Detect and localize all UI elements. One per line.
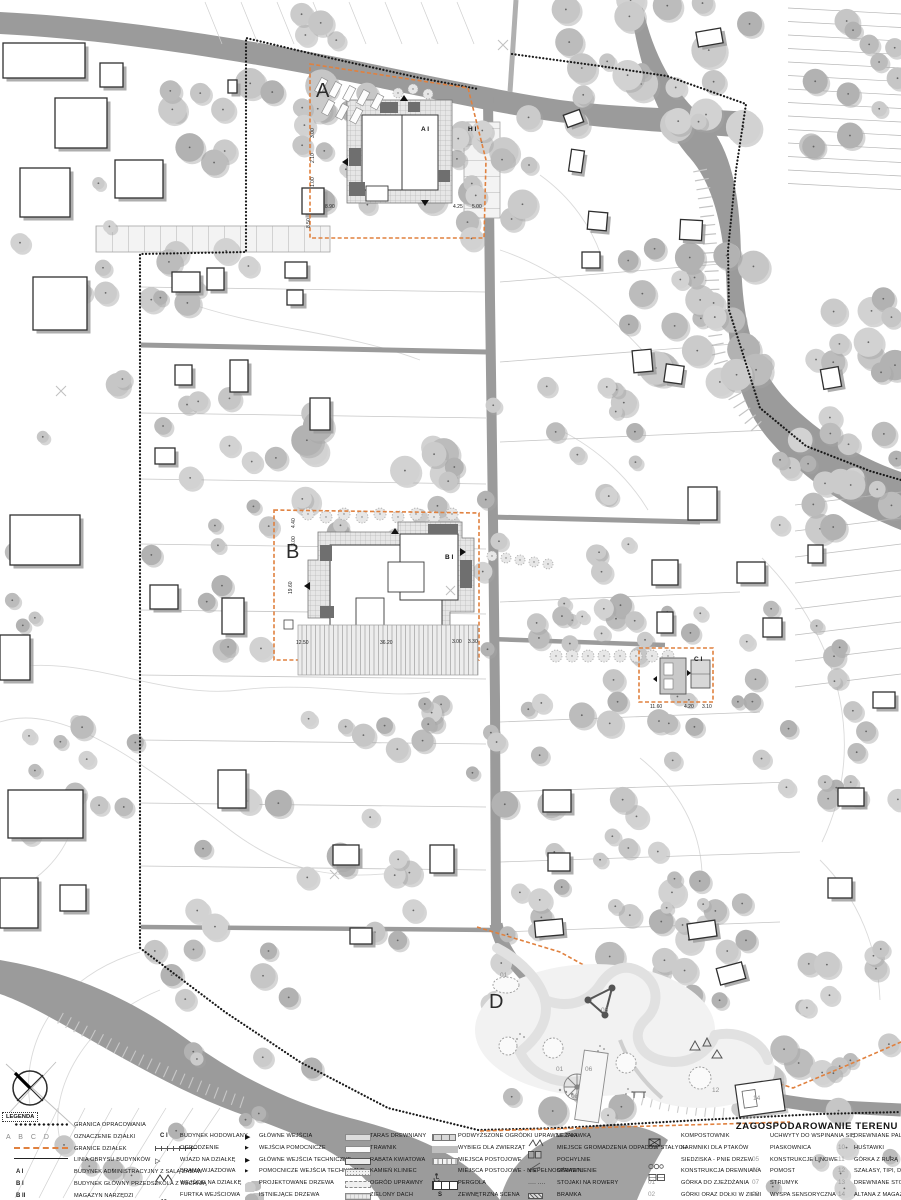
tree (211, 98, 237, 124)
legend-code: B I (16, 1181, 24, 1187)
legend-label: OZNACZENIE DZIAŁKI (74, 1135, 135, 1141)
tree (114, 798, 135, 819)
playground-number: 12 (712, 1087, 720, 1094)
tree (692, 0, 716, 16)
swing-icon (632, 1092, 646, 1098)
tree (567, 53, 599, 85)
building-label: B I (445, 554, 454, 561)
legend-label: RABATA KWIATOWA (370, 1158, 425, 1164)
tree (803, 69, 831, 97)
legend-label: POCHYLNIE (557, 1158, 591, 1164)
tree (79, 751, 98, 770)
tree (538, 1096, 570, 1128)
tree (887, 67, 901, 91)
tree (610, 787, 638, 815)
tree (179, 466, 204, 491)
existing-house (820, 366, 845, 393)
tree (621, 537, 638, 554)
dimension-label: 3.10 (702, 704, 712, 710)
tree (94, 282, 119, 307)
sw-postoj-symbol (432, 1158, 458, 1165)
tree (697, 898, 712, 913)
tree (712, 992, 731, 1011)
legend-code: 13 (838, 1180, 845, 1186)
tree (190, 83, 213, 106)
tree (521, 157, 540, 176)
existing-house (663, 364, 687, 388)
tree (242, 452, 265, 475)
projected-tree (392, 511, 404, 523)
existing-house (155, 448, 179, 468)
existing-house (302, 188, 328, 218)
tree (878, 1033, 901, 1057)
tree (388, 931, 410, 953)
tree (872, 422, 899, 449)
dimension-label: 3.30 (468, 639, 478, 645)
tree (260, 942, 280, 962)
tree (818, 775, 835, 792)
tree (154, 417, 174, 437)
road-top-branch (510, 0, 516, 92)
oswietlenie-symbol: × × (528, 1169, 537, 1175)
tree (618, 838, 640, 860)
tree (265, 790, 294, 819)
legend-label: MIEJSCE GROMADZENIA ODPADÓW STAŁYCH (557, 1146, 687, 1152)
legend-label: BRAMA WJAZDOWA (180, 1169, 236, 1175)
dimension-label: 8.90 (325, 204, 335, 210)
tree (390, 456, 422, 488)
existing-house (0, 635, 34, 684)
legend-label: GŁÓWNE WEJŚCIA (259, 1134, 312, 1140)
tree (28, 764, 44, 780)
legend-label: ZEWNĘTRZNA SCENA (458, 1193, 520, 1199)
existing-house (688, 487, 721, 524)
parcel-line (140, 803, 486, 807)
legend-code: 10 (838, 1145, 845, 1151)
tree (887, 789, 901, 813)
parcel-line (500, 342, 760, 362)
legend-label: OŚWIETLENIE (557, 1169, 597, 1175)
legend-code: S (438, 1192, 442, 1198)
legend-code: 11 (838, 1157, 845, 1163)
projected-tree (356, 511, 368, 523)
legend-label: BRAMKA (557, 1193, 582, 1199)
legend-code: 14 (838, 1192, 845, 1198)
projected-tree (566, 650, 578, 662)
tree (847, 743, 868, 764)
tree (648, 842, 670, 864)
legend-label: KARMNIKI DLA PTAKÓW (681, 1146, 748, 1152)
legend-label: LINIA OBRYSU BUDYNKÓW (74, 1158, 150, 1164)
legend-label: WEJŚCIA POMOCNICZE (259, 1146, 326, 1152)
dimension-label: 19.60 (288, 581, 294, 594)
projected-tree (515, 555, 525, 565)
tree (603, 669, 627, 693)
tree (402, 899, 427, 924)
existing-house (20, 168, 74, 221)
tree (681, 623, 702, 644)
tree (537, 377, 559, 399)
legend-label: MIEJSCA POSTOJOWE (458, 1158, 522, 1164)
legend-label: KONSTRUKCJE LINOWE (770, 1158, 838, 1164)
tri-small-symbol: ▷ (155, 1181, 159, 1186)
tree (569, 447, 587, 465)
tree (503, 1088, 523, 1108)
projected-tree (374, 508, 386, 520)
legend-label: TRAWNIK (370, 1146, 397, 1152)
tree (780, 720, 800, 740)
dash-orange-symbol (14, 1147, 68, 1149)
tree (837, 123, 866, 152)
tree (771, 516, 792, 537)
existing-house (534, 919, 567, 941)
tree (194, 840, 214, 860)
sw-trawnik-symbol (345, 1146, 371, 1153)
tree (265, 447, 290, 472)
tree (644, 238, 668, 262)
tree (198, 593, 218, 613)
parcel-line (500, 712, 760, 722)
sw-rabata-symbol (345, 1158, 371, 1165)
site-plan-drawing: ABDA IH IB IC I8.503.002.101.008.904.255… (0, 0, 901, 1200)
legend-code: A I (16, 1169, 23, 1175)
tree (597, 378, 618, 399)
existing-house (8, 790, 87, 842)
tree (618, 250, 641, 273)
tree (175, 133, 206, 164)
projected-tree (582, 650, 594, 662)
existing-house (828, 878, 856, 902)
tree (837, 82, 863, 108)
tree (22, 729, 39, 746)
tree (843, 701, 865, 723)
legend-code: A B C D (6, 1134, 52, 1141)
legend-label: SIEDZISKA - PNIE DRZEW (681, 1158, 753, 1164)
tree (546, 422, 568, 444)
tree (653, 0, 685, 23)
tree (211, 575, 235, 599)
legend-label: POMOST (770, 1169, 795, 1175)
tree (531, 746, 551, 766)
legend-label: GÓRKA DO ZJEŻDŻANIA (681, 1181, 749, 1187)
arrow-xs-symbol: ▶ (245, 1169, 248, 1174)
river-bottom (0, 960, 500, 1200)
legend-label: WYBIEG DLA ZWIERZĄT (458, 1146, 526, 1152)
tree (316, 142, 336, 162)
legend-label: ISTNIEJĄCE DRZEWA (259, 1193, 319, 1199)
projected-tree (320, 511, 332, 523)
tree (127, 734, 147, 754)
existing-house (3, 43, 89, 82)
legend-code: 07 (752, 1180, 759, 1186)
tree (386, 738, 411, 763)
drawing-title: ZAGOSPODAROWANIE TERENU (736, 1121, 898, 1132)
tree (664, 752, 684, 772)
existing-house (55, 98, 111, 152)
tree (70, 715, 96, 741)
legend-label: TARAS DREWNIANY (370, 1134, 426, 1140)
tree (689, 870, 713, 894)
playground-number: 06 (585, 1066, 593, 1073)
parcel-line (140, 675, 486, 679)
projected-tree (501, 553, 511, 563)
existing-house (632, 349, 657, 376)
legend-label: KOMPOSTOWNIK (681, 1134, 730, 1140)
legend-label: WJAZD NA DZIAŁKĘ (180, 1158, 236, 1164)
legend-label: LEŻAKI (557, 1134, 577, 1140)
tree (753, 750, 773, 770)
tree (608, 899, 625, 916)
projected-tree (529, 557, 539, 567)
tree (778, 779, 798, 799)
existing-house (808, 545, 827, 567)
tree (253, 1048, 275, 1070)
tree (260, 80, 286, 106)
legend-label: FURTKA WEJŚCIOWA (180, 1193, 240, 1199)
dimension-label: 8.50 (306, 218, 312, 228)
tree (619, 315, 641, 337)
existing-house (350, 928, 376, 948)
legend-code: 12 (838, 1168, 845, 1174)
tree (629, 280, 658, 309)
road-cross-right-1 (490, 517, 700, 522)
legend-label: WYSPA SENSORYCZNA (770, 1193, 836, 1199)
existing-house (230, 360, 252, 396)
legend-label: ALTANA Z MAGAZYNEM (854, 1193, 901, 1199)
dimension-label: 4.40 (291, 518, 297, 528)
tree (593, 853, 610, 870)
projected-tree (646, 650, 658, 662)
existing-house (10, 515, 84, 569)
legend-label: WEJŚCIE NA DZIAŁKĘ (180, 1181, 241, 1187)
tree (821, 298, 850, 327)
tree (54, 735, 70, 751)
legend-code: B II (16, 1193, 25, 1199)
legend-label: DREWNIANE PALE (854, 1134, 901, 1140)
dimension-label: 5.00 (472, 204, 482, 210)
dimension-label: 11.60 (650, 704, 662, 710)
area-label: A (316, 80, 330, 102)
dimension-label: 3.00 (291, 536, 297, 546)
tree (466, 766, 481, 781)
tree (629, 455, 645, 471)
existing-house (548, 853, 574, 875)
sw-taras-symbol (345, 1134, 371, 1141)
legend-label: PROJEKTOWANE DRZEWA (259, 1181, 334, 1187)
tree (37, 431, 52, 446)
arrow-tech-symbol: ▶ (245, 1158, 250, 1165)
legend-label: KONSTRUKCJA DREWNIANA (681, 1169, 761, 1175)
projected-tree (630, 650, 642, 662)
tree (141, 545, 164, 568)
projected-tree (487, 551, 497, 561)
tree (352, 724, 378, 750)
legend-code: 05 (752, 1157, 759, 1163)
existing-house (218, 770, 250, 812)
tree (737, 11, 765, 39)
existing-house (172, 272, 204, 296)
legend-label: HUŚTAWKI (854, 1146, 884, 1152)
dimension-label: 36.20 (380, 640, 393, 646)
tree (625, 611, 647, 633)
playground-number: 08 (571, 1093, 579, 1100)
tree (888, 451, 901, 470)
dimension-label: 4.20 (684, 704, 694, 710)
existing-house (430, 845, 458, 877)
bramka-symbol (528, 1193, 543, 1199)
tree (597, 710, 625, 738)
tree (90, 796, 111, 817)
existing-house (838, 788, 868, 810)
existing-house (115, 160, 167, 202)
tree (738, 251, 772, 285)
arrow-lg-symbol: ▶ (245, 1134, 250, 1141)
legend-label: DREWNIANE STOŁECZKI (854, 1181, 901, 1187)
road-cross-left-1 (141, 345, 487, 352)
area-label: D (489, 991, 503, 1013)
tree (856, 721, 879, 744)
tree (202, 914, 231, 943)
existing-house (763, 618, 786, 641)
legend-code: 06 (752, 1168, 759, 1174)
existing-house (287, 290, 307, 309)
projected-tree (543, 559, 553, 569)
tree (820, 986, 841, 1007)
tree (208, 519, 224, 535)
tree (675, 243, 707, 275)
dimension-label: 2.10 (310, 153, 316, 163)
tree (5, 593, 22, 610)
tree (301, 1057, 325, 1081)
sw-dach-symbol (345, 1193, 371, 1200)
tree (297, 867, 321, 891)
building-b-group (284, 522, 478, 675)
projected-tree (614, 650, 626, 662)
legend-code: 02 (648, 1192, 655, 1198)
legend-label: GRANICA OPRACOWANIA (74, 1123, 146, 1129)
legend-label: STRUMYK (770, 1181, 798, 1187)
tree (528, 888, 554, 914)
dimension-label: 3.00 (452, 639, 462, 645)
existing-house (285, 262, 311, 282)
tri-open-symbol: ▷ (155, 1158, 160, 1165)
existing-house (657, 612, 677, 637)
legend-code: 08 (752, 1192, 759, 1198)
tree (745, 669, 769, 693)
projected-tree (408, 84, 418, 94)
legend-label: MAGAZYN NARZĘDZI (74, 1194, 134, 1200)
existing-house (716, 961, 750, 988)
tree (247, 499, 263, 515)
tree (881, 307, 901, 330)
sw-ogrod-symbol (345, 1181, 371, 1188)
existing-house (207, 268, 228, 294)
existing-house (873, 692, 899, 712)
building-c-group (653, 658, 710, 694)
existing-house (175, 365, 196, 389)
tree (569, 702, 597, 730)
projected-tree (550, 650, 562, 662)
tree (279, 987, 302, 1010)
legend-label: GÓRKI ORAZ DOŁKI W ZIEMI (681, 1193, 761, 1199)
building-label: A I (421, 126, 429, 133)
tree (763, 601, 782, 620)
tree (362, 809, 382, 829)
dimension-label: 12.50 (296, 640, 309, 646)
projected-tree (423, 89, 433, 99)
legend-label: GRANICE DZIAŁEK (74, 1147, 127, 1153)
legend-label: KAMIEŃ KLINIEC (370, 1169, 417, 1175)
sw-wybieg-symbol (432, 1146, 458, 1153)
projected-tree (393, 88, 403, 98)
existing-house (33, 277, 91, 334)
stojaki-symbol: ···· ···· (528, 1181, 546, 1187)
projected-tree (446, 508, 458, 520)
tree (871, 101, 889, 119)
legend-label: GÓRKA Z RURĄ (854, 1158, 898, 1164)
projected-tree (598, 650, 610, 662)
dots-symbol (14, 1123, 68, 1126)
tree (238, 256, 261, 279)
legend-label: ZIELONY DACH (370, 1193, 413, 1199)
existing-house (652, 560, 682, 589)
dimension-label: 4.25 (453, 204, 463, 210)
legend-label: BUDYNEK HODOWLANY (180, 1134, 248, 1140)
tree (870, 53, 890, 73)
legend-label: GŁÓWNE WEJŚCIA TECHNICZNE (259, 1158, 351, 1164)
projected-tree (410, 508, 422, 520)
existing-house (150, 585, 182, 613)
line-symbol (14, 1158, 68, 1159)
tree (175, 989, 198, 1012)
tree (693, 606, 709, 622)
terrace-striped (298, 625, 478, 675)
playground-number: 14 (753, 1095, 761, 1102)
legend-code: 01 (648, 1180, 655, 1186)
arrow-sm-symbol: ▶ (245, 1146, 249, 1151)
site-plan-page: ABDA IH IB IC I8.503.002.101.008.904.255… (0, 0, 901, 1200)
existing-house (737, 562, 769, 587)
tree (770, 1035, 800, 1065)
tree (591, 561, 615, 585)
projected-tree (338, 508, 350, 520)
tree (682, 335, 715, 368)
sw-podw-symbol (432, 1134, 456, 1141)
playground-number: 05 (601, 1007, 609, 1014)
tree (10, 233, 32, 255)
legend-label: STOJAKI NA ROWERY (557, 1181, 618, 1187)
tree (184, 940, 206, 962)
playground-number: 01 (556, 1066, 564, 1073)
existing-house (60, 885, 90, 915)
sw-pergola-symbol (432, 1181, 458, 1190)
altana-building (735, 1078, 788, 1119)
tree (460, 227, 485, 252)
legend-label: PERGOLA (458, 1181, 486, 1187)
road-cross-left-2 (141, 927, 494, 930)
tree (160, 964, 185, 989)
legend-code: C I (160, 1133, 168, 1139)
dimension-label: 1.00 (310, 177, 316, 187)
tree (95, 260, 114, 279)
tree (814, 952, 842, 980)
karmniki-symbol: □ □ (648, 1146, 656, 1152)
tree (554, 879, 572, 897)
tree (685, 718, 706, 739)
tree (552, 0, 583, 26)
existing-house (582, 252, 604, 272)
tree (92, 177, 107, 192)
